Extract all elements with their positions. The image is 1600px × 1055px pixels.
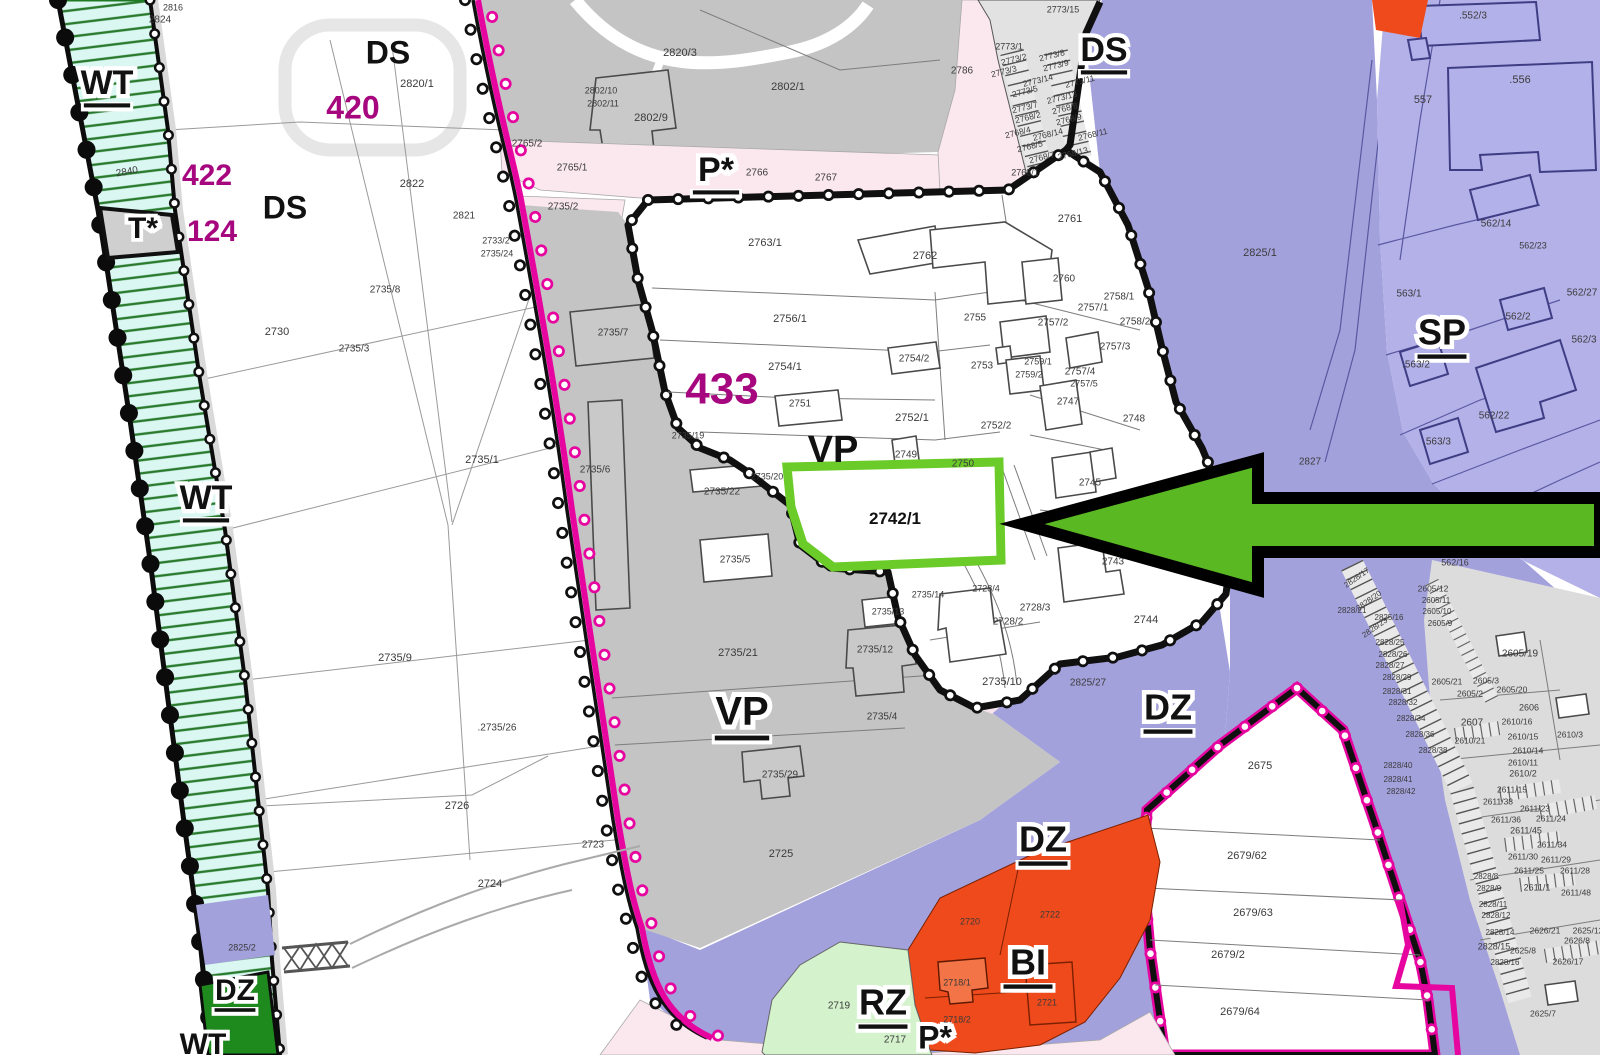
map-label: 2820/3	[663, 47, 697, 59]
map-label-underline	[84, 103, 130, 107]
map-label: DZ	[215, 974, 255, 1007]
map-label: 2828/8	[1474, 872, 1499, 881]
map-label: 2679/64	[1220, 1006, 1260, 1018]
map-label: 2816	[163, 2, 183, 12]
map-label: 2679/63	[1233, 907, 1273, 919]
map-label: VP	[715, 690, 768, 734]
map-label: 2728/4	[972, 583, 1000, 593]
map-label: 2735/9	[378, 652, 412, 664]
map-label: 2751	[789, 399, 812, 410]
map-label-underline	[1004, 984, 1053, 988]
map-label: 2725	[769, 848, 793, 860]
map-label: 562/22	[1479, 411, 1510, 422]
map-label: 2735/13	[872, 606, 905, 616]
map-label: 2765/2	[512, 139, 543, 150]
map-label-underline	[693, 190, 739, 194]
map-label: 2828/15	[1478, 941, 1511, 951]
map-label: 2728/2	[993, 617, 1024, 628]
map-label: 2722	[1040, 909, 1060, 919]
map-label: 562/27	[1567, 288, 1598, 299]
map-label: 2735/7	[598, 328, 629, 339]
map-label: 2735/2	[548, 202, 579, 213]
map-label: 2758/1	[1104, 292, 1135, 303]
map-label: 2762	[913, 250, 937, 262]
map-label: 2626/21	[1530, 925, 1561, 935]
map-label: 2752/2	[981, 421, 1012, 432]
map-label: 2611/34	[1537, 839, 1567, 849]
map-label: 2828/11	[1479, 900, 1508, 909]
map-label: 2828/38	[1419, 746, 1448, 755]
map-label: 2611/48	[1561, 887, 1591, 897]
map-label: 563/1	[1396, 289, 1421, 300]
highlight-parcel-2742-1: 2742/1	[787, 462, 1001, 567]
map-label: T*	[128, 212, 158, 245]
map-label: 2743	[1102, 557, 1125, 568]
map-label: 2757/1	[1078, 303, 1109, 314]
map-label: 2763/1	[748, 237, 782, 249]
map-label: 2753	[971, 361, 994, 372]
map-label: 2607	[1461, 718, 1484, 729]
map-label: 2735/20	[751, 471, 784, 481]
map-label: 2735/4	[867, 712, 898, 723]
map-label: .2735/26	[478, 723, 517, 734]
map-label: 2626/8	[1564, 935, 1590, 945]
map-label: 2721	[1037, 997, 1057, 1007]
map-label: 2611/23	[1520, 803, 1550, 813]
map-label: 2768/1	[1011, 167, 1039, 177]
highlight-parcel-label: 2742/1	[869, 509, 921, 528]
map-label: 2761	[1058, 213, 1082, 225]
map-label: 2747	[1057, 397, 1080, 408]
map-label: VP	[808, 429, 859, 471]
map-label: 2733/2	[482, 235, 510, 245]
map-label: 562/16	[1441, 557, 1469, 567]
map-label: 2610/16	[1502, 716, 1533, 726]
map-label: 2802/9	[634, 112, 668, 124]
map-label: 2605/11	[1422, 596, 1451, 605]
map-label: 2828/31	[1383, 687, 1412, 696]
map-label: SP	[1418, 312, 1466, 353]
map-label: DZ	[1144, 687, 1192, 728]
map-label: 2611/28	[1560, 865, 1590, 875]
map-label: 2828/25	[1376, 638, 1405, 647]
map-label: 422	[182, 159, 232, 192]
map-label: 2756/1	[773, 313, 807, 325]
map-label-underline	[1418, 354, 1467, 358]
map-label: 2735/1	[465, 454, 499, 466]
map-label: 2718/1	[943, 977, 971, 987]
map-label: 2610/15	[1508, 731, 1539, 741]
map-label: 2754/1	[768, 361, 802, 373]
map-label: 2735/29	[762, 770, 799, 781]
map-label: 2735/19	[672, 430, 705, 440]
map-label-underline	[183, 518, 229, 522]
map-label: 2605/2	[1457, 688, 1483, 698]
map-label: 2611/45	[1510, 825, 1542, 835]
map-label: 2611/1	[1524, 882, 1551, 892]
map-label: 2754/2	[899, 354, 930, 365]
map-label: 2828/32	[1389, 698, 1418, 707]
map-label-underline	[715, 736, 769, 741]
map-label: 2744	[1134, 614, 1158, 626]
map-label: 2730	[265, 326, 289, 338]
map-label: 124	[187, 215, 237, 248]
map-label: 2755	[964, 313, 987, 324]
map-label: 2828/27	[1376, 661, 1405, 670]
map-label: 562/23	[1519, 240, 1547, 250]
map-label: 2726	[445, 800, 469, 812]
map-label: WT	[180, 1028, 227, 1055]
map-label: 2611/24	[1536, 813, 1566, 823]
map-label: 2759/2	[1015, 369, 1043, 379]
zoning-map-canvas: 2742/1 WTWTWTT*DSSPP*P*VPDZDZDZRZBIDSDSV…	[0, 0, 1600, 1055]
map-label: 2610/11	[1508, 757, 1538, 767]
map-label: 2802/11	[587, 98, 619, 108]
map-label: 2757/5	[1070, 378, 1098, 388]
map-label: 2822	[400, 178, 424, 190]
map-label: 2757/4	[1065, 367, 1096, 378]
map-label: 2605/10	[1423, 607, 1452, 616]
map-label: .563/2	[1402, 360, 1430, 371]
map-label: .556	[1509, 74, 1530, 86]
map-label: 2802/1	[771, 81, 805, 93]
map-label: 2735/6	[580, 465, 611, 476]
map-label: 2827	[1299, 457, 1322, 468]
map-label: 420	[326, 89, 379, 125]
map-label: 2757/2	[1038, 318, 1069, 329]
map-label: 2735/10	[982, 676, 1022, 688]
map-label: 2825/27	[1070, 678, 1107, 689]
map-label: 2728/3	[1020, 603, 1051, 614]
map-label: 2752/1	[895, 412, 929, 424]
map-label: 2605/19	[1502, 649, 1539, 660]
map-label: 2719	[828, 1001, 851, 1012]
map-label: 2828/34	[1397, 714, 1426, 723]
map-label: 2758/2	[1120, 317, 1151, 328]
map-label: 562/2	[1505, 312, 1530, 323]
zoning-map: 2742/1 WTWTWTT*DSSPP*P*VPDZDZDZRZBIDSDSV…	[0, 0, 1600, 1055]
map-label: DS	[1080, 31, 1127, 69]
map-label-underline	[859, 1024, 908, 1028]
map-label: 2765/1	[557, 163, 588, 174]
map-label: 2828/29	[1383, 673, 1412, 682]
map-label: 2611/29	[1541, 854, 1571, 864]
map-label: 2723	[582, 840, 605, 851]
map-label: 2749	[895, 450, 918, 461]
map-label: WT	[180, 479, 233, 517]
map-label: DS	[263, 189, 307, 225]
map-label: 2611/36	[1491, 814, 1521, 824]
map-label: 2821	[453, 211, 476, 222]
map-label: 2773/15	[1047, 4, 1080, 14]
map-label: 2773/1	[995, 41, 1023, 51]
map-label: 2767	[815, 173, 838, 184]
map-label-underline	[1019, 861, 1068, 865]
map-label: 2828/42	[1387, 787, 1416, 796]
map-label: 2625/8	[1510, 945, 1536, 955]
map-label: 2735/14	[912, 589, 945, 599]
map-label: 2625/7	[1530, 1008, 1556, 1018]
gray-area-top	[478, 0, 998, 160]
map-label: 2748	[1123, 414, 1146, 425]
map-label: 2745	[1079, 478, 1102, 489]
map-label: 2828/41	[1384, 775, 1413, 784]
map-label: 2828/16	[1491, 958, 1520, 967]
map-label: 2735/24	[481, 248, 514, 258]
map-label: 562/3	[1571, 335, 1596, 346]
map-label: 2611/15	[1497, 784, 1527, 794]
map-label: 2828/12	[1482, 911, 1511, 920]
map-label: 2750	[952, 459, 975, 470]
map-label: .552/3	[1459, 11, 1487, 22]
map-label: P*	[918, 1019, 952, 1055]
map-label: 2735/3	[339, 344, 370, 355]
map-label: RZ	[859, 982, 907, 1023]
map-label: 433	[685, 365, 758, 414]
map-label: 2757/3	[1100, 342, 1131, 353]
map-label: 2735/12	[857, 645, 894, 656]
map-label: 2828/9	[1477, 884, 1502, 893]
map-label-underline	[1144, 729, 1193, 733]
map-label: 2735/22	[704, 487, 741, 498]
map-label: 2760	[1053, 274, 1076, 285]
map-label: 2735/5	[720, 555, 751, 566]
map-label: 562/14	[1481, 219, 1512, 230]
map-label: 2679/2	[1211, 949, 1245, 961]
map-label: 2786	[951, 66, 974, 77]
map-label: 2828/14	[1486, 928, 1515, 937]
map-label: 2828/21	[1338, 606, 1367, 615]
map-label: 2605/3	[1473, 675, 1499, 685]
map-label-underline	[215, 1008, 256, 1012]
map-label: 2626/17	[1553, 956, 1584, 966]
map-label: DS	[366, 34, 410, 70]
map-label: 2828/40	[1384, 761, 1413, 770]
map-label: 2735/8	[370, 285, 401, 296]
map-label: 2611/25	[1514, 865, 1544, 875]
map-label: 2828/26	[1379, 650, 1408, 659]
map-label: .563/3	[1423, 437, 1451, 448]
map-label: 2605/12	[1418, 583, 1449, 593]
map-label: 2717	[884, 1035, 907, 1046]
map-label: 2679/62	[1227, 850, 1267, 862]
map-label: 2605/9	[1428, 619, 1453, 628]
map-label: BI	[1010, 942, 1046, 983]
dz-crossing-2825-2	[196, 895, 275, 965]
map-label: 2720	[960, 916, 980, 926]
map-label: WT	[81, 64, 134, 102]
map-label: 2828/36	[1406, 730, 1435, 739]
map-label: 2824	[149, 15, 172, 26]
map-label: 2802/10	[585, 85, 618, 95]
map-label: 2724	[478, 878, 502, 890]
map-label: 2625/12	[1573, 925, 1600, 935]
map-label: 2766	[746, 168, 769, 179]
map-label: 2611/30	[1508, 851, 1538, 861]
map-label: 2610/2	[1509, 768, 1537, 778]
map-label: 2610/3	[1557, 729, 1583, 739]
map-label: 2610/14	[1513, 745, 1544, 755]
map-label: 2825/2	[228, 942, 256, 952]
map-label: 2735/21	[718, 647, 758, 659]
map-label: 2759/1	[1024, 356, 1052, 366]
map-label: 557	[1414, 94, 1432, 106]
map-label: 2610/21	[1455, 735, 1486, 745]
map-label: 2605/20	[1497, 684, 1528, 694]
map-label: P*	[698, 151, 735, 189]
map-label: 2675	[1248, 760, 1272, 772]
map-label: 2611/38	[1483, 796, 1513, 806]
map-label: 2605/21	[1432, 676, 1463, 686]
map-label: 2820/1	[400, 78, 434, 90]
map-label: DZ	[1019, 819, 1067, 860]
map-label: 2718/2	[943, 1014, 971, 1024]
map-label: 2825/1	[1243, 247, 1277, 259]
map-label: 2606	[1519, 702, 1539, 712]
